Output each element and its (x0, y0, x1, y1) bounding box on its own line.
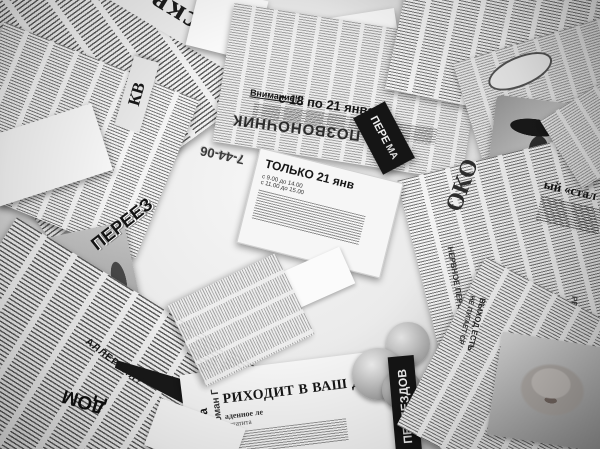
kv-fragment-text: КВ (124, 80, 150, 108)
stamp-oval (483, 44, 557, 98)
face-photo-clipping (487, 332, 600, 449)
newspaper-collage-photo: осква КВ Внимание!!! с 18 по 21 января П… (0, 0, 600, 449)
